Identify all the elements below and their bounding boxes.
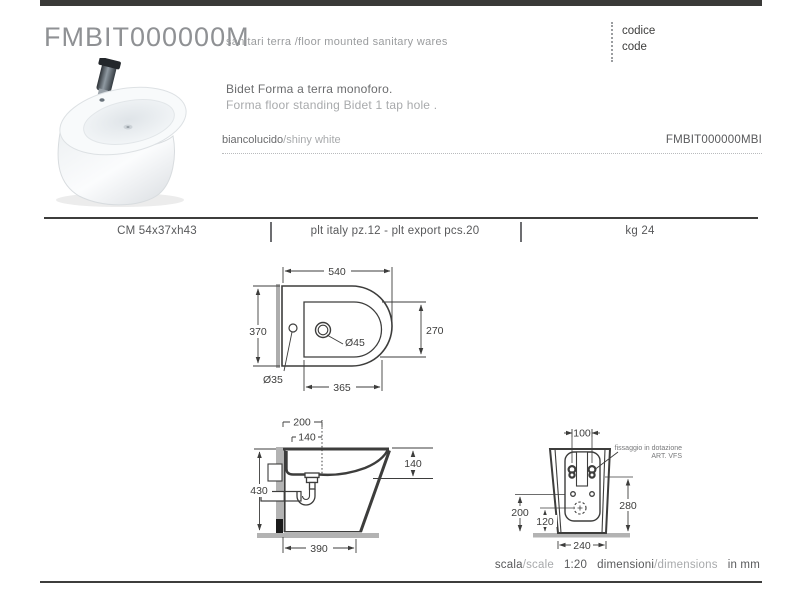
- dim-basin-length: 365: [333, 382, 351, 394]
- inlet-hole: [571, 492, 576, 497]
- dim-fixing-height: 280: [619, 500, 637, 512]
- finish-row: biancolucido/shiny white FMBIT000000MBI: [222, 134, 762, 154]
- dim-depth: 370: [249, 326, 267, 338]
- floor-section: [257, 533, 379, 538]
- product-photo: [35, 58, 220, 210]
- plan-view-drawing: 540 370 270 365 Ø45 Ø35: [230, 255, 473, 403]
- dim-width: 540: [328, 266, 346, 278]
- page-title: FMBIT000000M: [44, 22, 250, 53]
- inlet-hole: [590, 492, 595, 497]
- finish-italian: biancolucido: [222, 134, 283, 146]
- spec-divider-line: [44, 217, 758, 219]
- dimensions-label-en: /dimensions: [654, 559, 718, 571]
- spec-weight: kg 24: [522, 225, 758, 237]
- scale-value: 1:20: [564, 559, 587, 571]
- dim-base-depth: 390: [310, 543, 328, 555]
- description-italian: Bidet Forma a terra monoforo.: [226, 82, 393, 96]
- rear-hole: [289, 324, 297, 332]
- finish-english: /shiny white: [283, 134, 340, 146]
- bottom-rule: [40, 581, 762, 583]
- wall-section: [276, 284, 280, 368]
- dim-rear-hole: Ø35: [263, 374, 283, 386]
- tap-hole: [99, 98, 104, 102]
- code-label: codice code: [622, 24, 655, 55]
- spec-size-cm: CM 54x37xh43: [44, 225, 270, 237]
- spec-pallet: plt italy pz.12 - plt export pcs.20: [272, 225, 518, 237]
- dim-fixing-span: 100: [573, 428, 591, 440]
- finish-label: biancolucido/shiny white: [222, 134, 341, 146]
- dim-height: 430: [250, 485, 268, 497]
- code-label-it: codice: [622, 24, 655, 40]
- wall-skirting: [276, 519, 283, 533]
- scale-note: scala/scale1:20dimensioni/dimensionsin m…: [495, 559, 760, 571]
- code-divider: [611, 22, 613, 62]
- wall-fixture: [268, 464, 282, 481]
- top-bar: [40, 0, 762, 6]
- dim-basin-depth: 270: [426, 325, 444, 337]
- dim-wall-to-hole: 140: [298, 432, 316, 444]
- datasheet-page: FMBIT000000M sanitari terra /floor mount…: [0, 0, 790, 590]
- bidet-profile: [283, 449, 390, 532]
- dim-tap-hole: Ø45: [345, 337, 365, 349]
- category-label: sanitari terra /floor mounted sanitary w…: [226, 36, 448, 48]
- scale-label-en: /scale: [523, 559, 554, 571]
- fixing-note-line2: ART. VFS: [651, 453, 682, 460]
- unit-label: in mm: [728, 559, 760, 571]
- code-label-en: code: [622, 40, 655, 56]
- description-english: Forma floor standing Bidet 1 tap hole .: [226, 98, 437, 112]
- back-view-drawing: 100 fissaggio in dotazione ART. VFS 200 …: [505, 400, 755, 565]
- dimensions-label-it: dimensioni: [597, 559, 654, 571]
- variant-code: FMBIT000000MBI: [666, 134, 762, 146]
- dim-drain-height: 120: [536, 516, 554, 528]
- dim-base-width: 240: [573, 540, 591, 552]
- dim-wall-to-tap: 200: [293, 417, 311, 429]
- dim-rim-to-outlet: 140: [404, 458, 422, 470]
- tap-hole-inner: [318, 325, 328, 335]
- side-view-drawing: 200 140 430 140 390: [230, 400, 475, 565]
- fixing-note-line1: fissaggio in dotazione: [615, 445, 682, 452]
- dim-inlet-height: 200: [511, 507, 529, 519]
- scale-label-it: scala: [495, 559, 523, 571]
- overflow-channel: [577, 452, 588, 486]
